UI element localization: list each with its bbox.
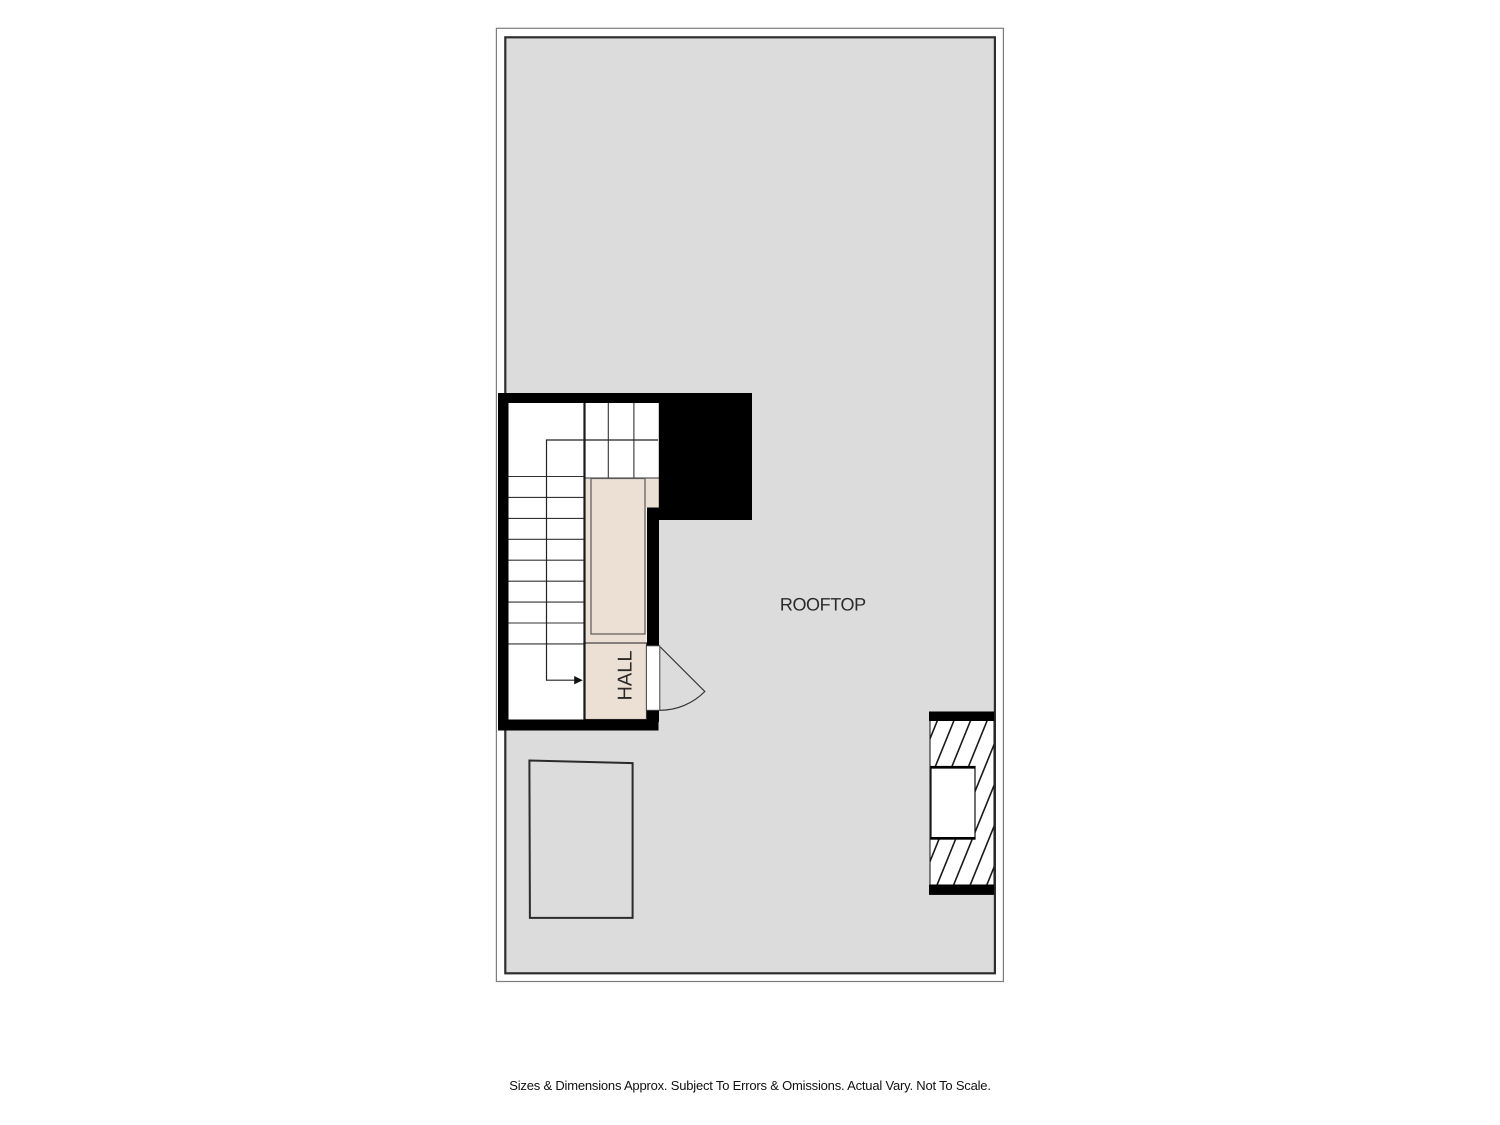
svg-text:HALL: HALL bbox=[615, 650, 637, 700]
svg-text:ROOFTOP: ROOFTOP bbox=[780, 595, 866, 615]
